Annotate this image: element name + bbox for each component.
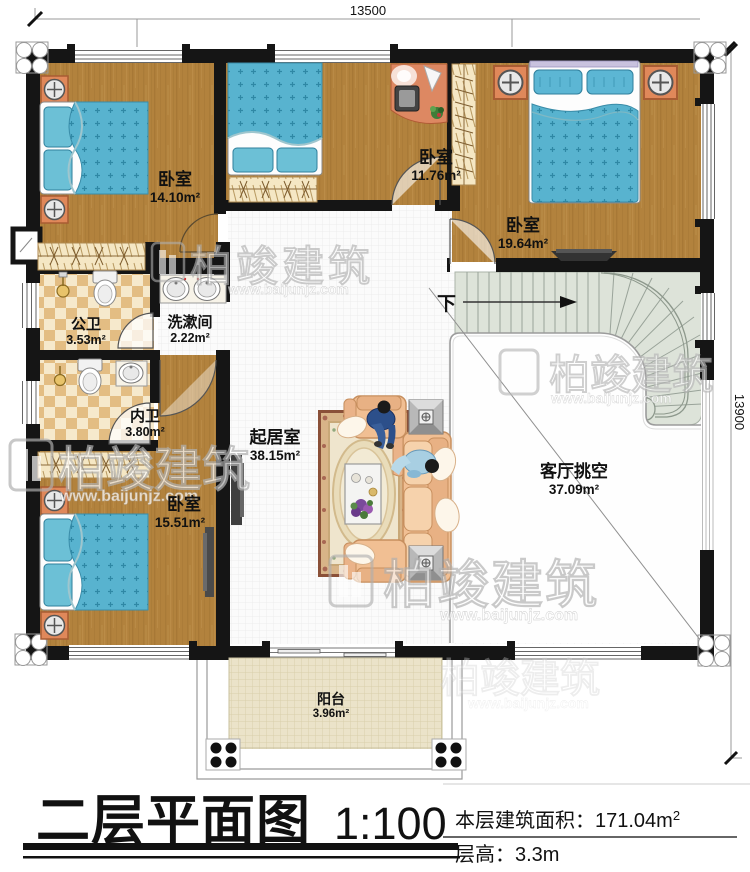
svg-text:客厅挑空: 客厅挑空: [539, 461, 608, 481]
svg-text:11.76m²: 11.76m²: [411, 168, 461, 183]
svg-text:3.96m²: 3.96m²: [313, 708, 350, 720]
svg-text:2.22m²: 2.22m²: [170, 331, 210, 345]
svg-text:19.64m²: 19.64m²: [498, 236, 549, 251]
svg-text:层高：3.3m: 层高：3.3m: [455, 843, 559, 866]
svg-text:13900: 13900: [732, 394, 747, 430]
svg-text:1:100: 1:100: [334, 798, 447, 849]
svg-text:www.baijunjz.com: www.baijunjz.com: [467, 695, 589, 711]
svg-text:www.baijunjz.com: www.baijunjz.com: [550, 390, 672, 406]
svg-text:卧室: 卧室: [506, 215, 540, 235]
svg-text:卧室: 卧室: [167, 494, 201, 514]
svg-text:www.baijunjz.com: www.baijunjz.com: [439, 607, 578, 624]
svg-text:38.15m²: 38.15m²: [250, 448, 301, 463]
svg-text:3.80m²: 3.80m²: [125, 425, 165, 439]
svg-text:公卫: 公卫: [71, 316, 101, 333]
svg-text:起居室: 起居室: [249, 427, 301, 447]
svg-text:阳台: 阳台: [317, 691, 345, 707]
svg-text:卧室: 卧室: [419, 147, 453, 167]
svg-text:下: 下: [437, 294, 456, 315]
svg-text:13500: 13500: [350, 3, 386, 18]
svg-text:37.09m²: 37.09m²: [549, 482, 600, 497]
svg-text:www.baijunjz.com: www.baijunjz.com: [227, 281, 349, 297]
svg-text:卧室: 卧室: [158, 169, 192, 189]
svg-text:内卫: 内卫: [130, 407, 160, 425]
svg-text:14.10m²: 14.10m²: [150, 190, 201, 205]
svg-text:15.51m²: 15.51m²: [155, 515, 206, 530]
svg-text:洗漱间: 洗漱间: [167, 313, 212, 331]
svg-text:二层平面图: 二层平面图: [36, 791, 311, 851]
svg-text:3.53m²: 3.53m²: [66, 333, 106, 347]
svg-text:本层建筑面积：171.04m2: 本层建筑面积：171.04m2: [455, 808, 680, 832]
